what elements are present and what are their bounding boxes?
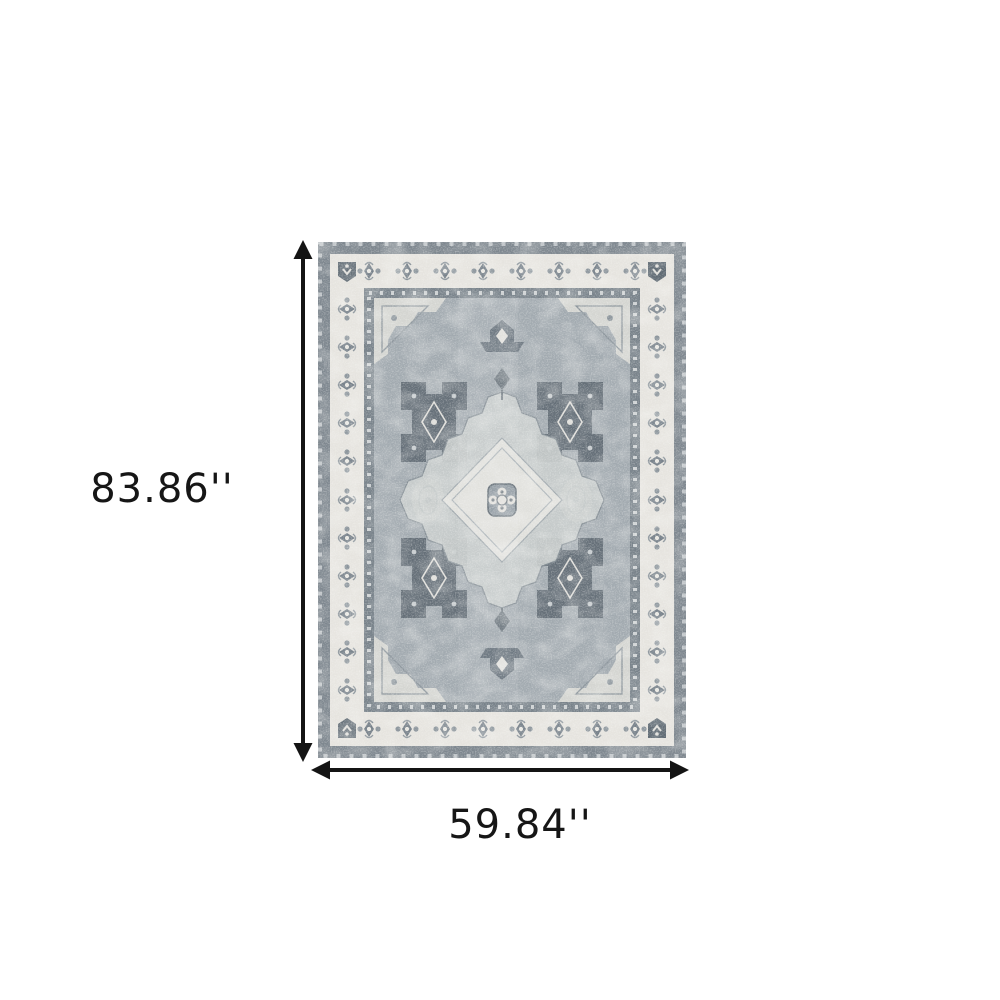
rug-graphic xyxy=(318,242,686,758)
width-dimension-arrow xyxy=(311,761,689,780)
rug-image xyxy=(318,242,686,758)
product-dimension-diagram: 83.86'' 59.84'' xyxy=(0,0,1000,1000)
width-dimension-label: 59.84'' xyxy=(420,802,620,848)
height-dimension-label: 83.86'' xyxy=(62,466,262,512)
height-dimension-arrow xyxy=(294,240,313,762)
